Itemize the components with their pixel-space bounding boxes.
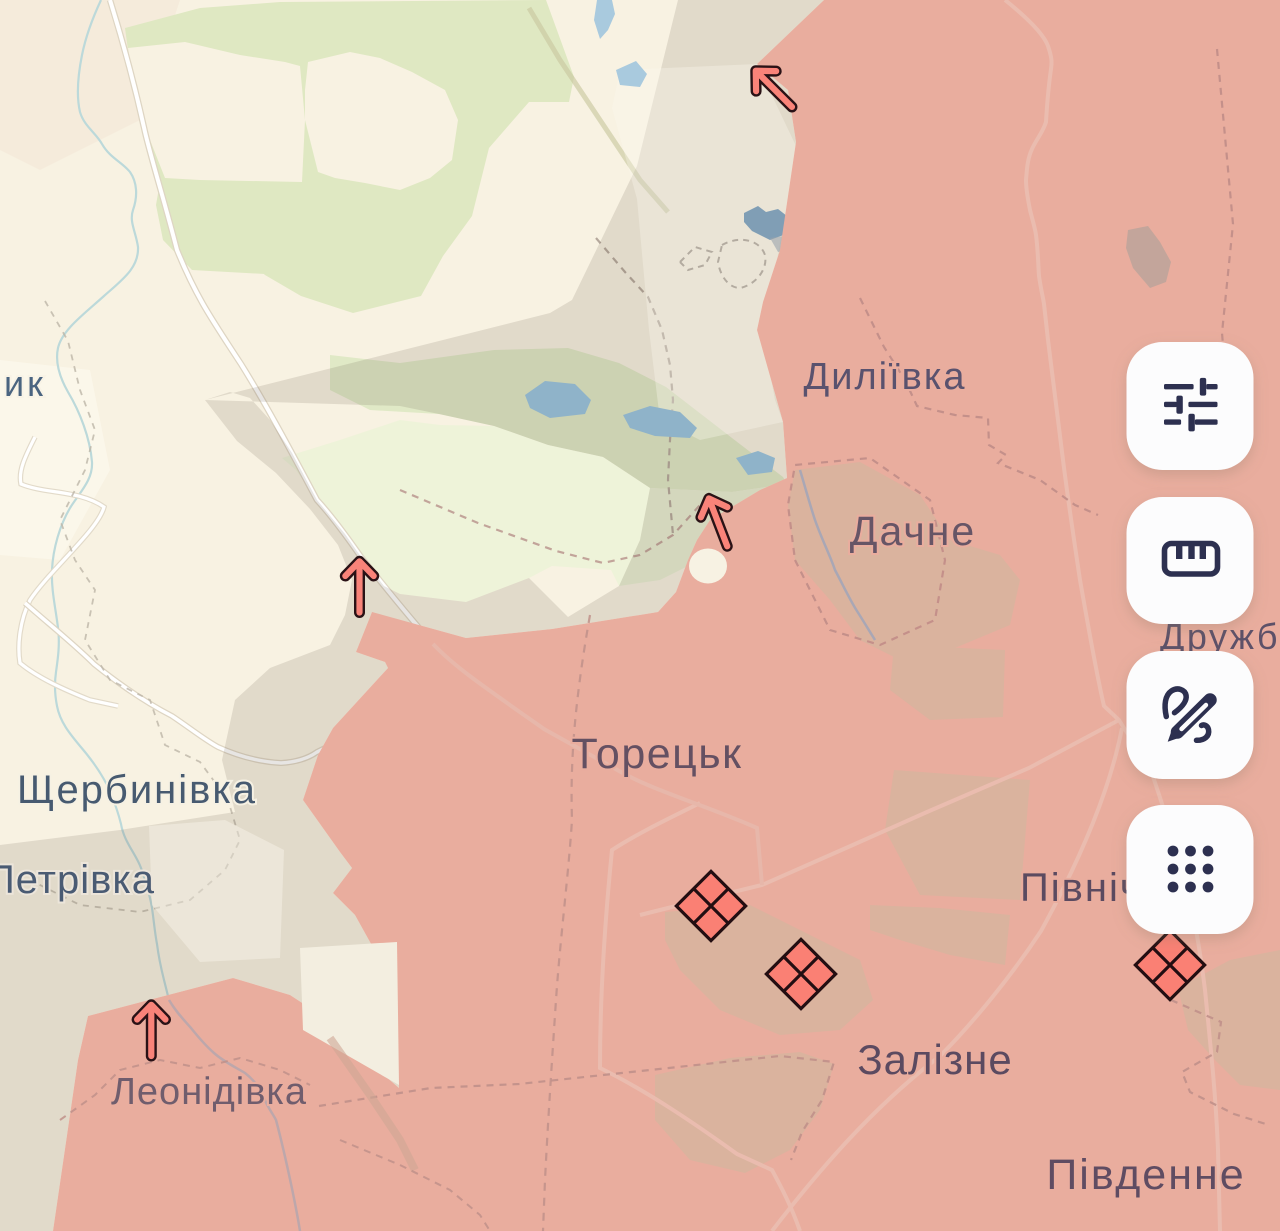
svg-text:Леонідівка: Леонідівка	[111, 1071, 307, 1113]
svg-text:Петрівка: Петрівка	[0, 858, 155, 902]
svg-text:Диліївка: Диліївка	[804, 356, 967, 398]
svg-text:Залізне: Залізне	[857, 1036, 1012, 1083]
svg-text:Дачне: Дачне	[850, 508, 976, 554]
svg-text:Торецьк: Торецьк	[572, 730, 743, 778]
svg-text:ик: ик	[4, 363, 46, 404]
svg-text:Щербинівка: Щербинівка	[17, 768, 257, 812]
svg-text:Південне: Південне	[1046, 1151, 1245, 1199]
